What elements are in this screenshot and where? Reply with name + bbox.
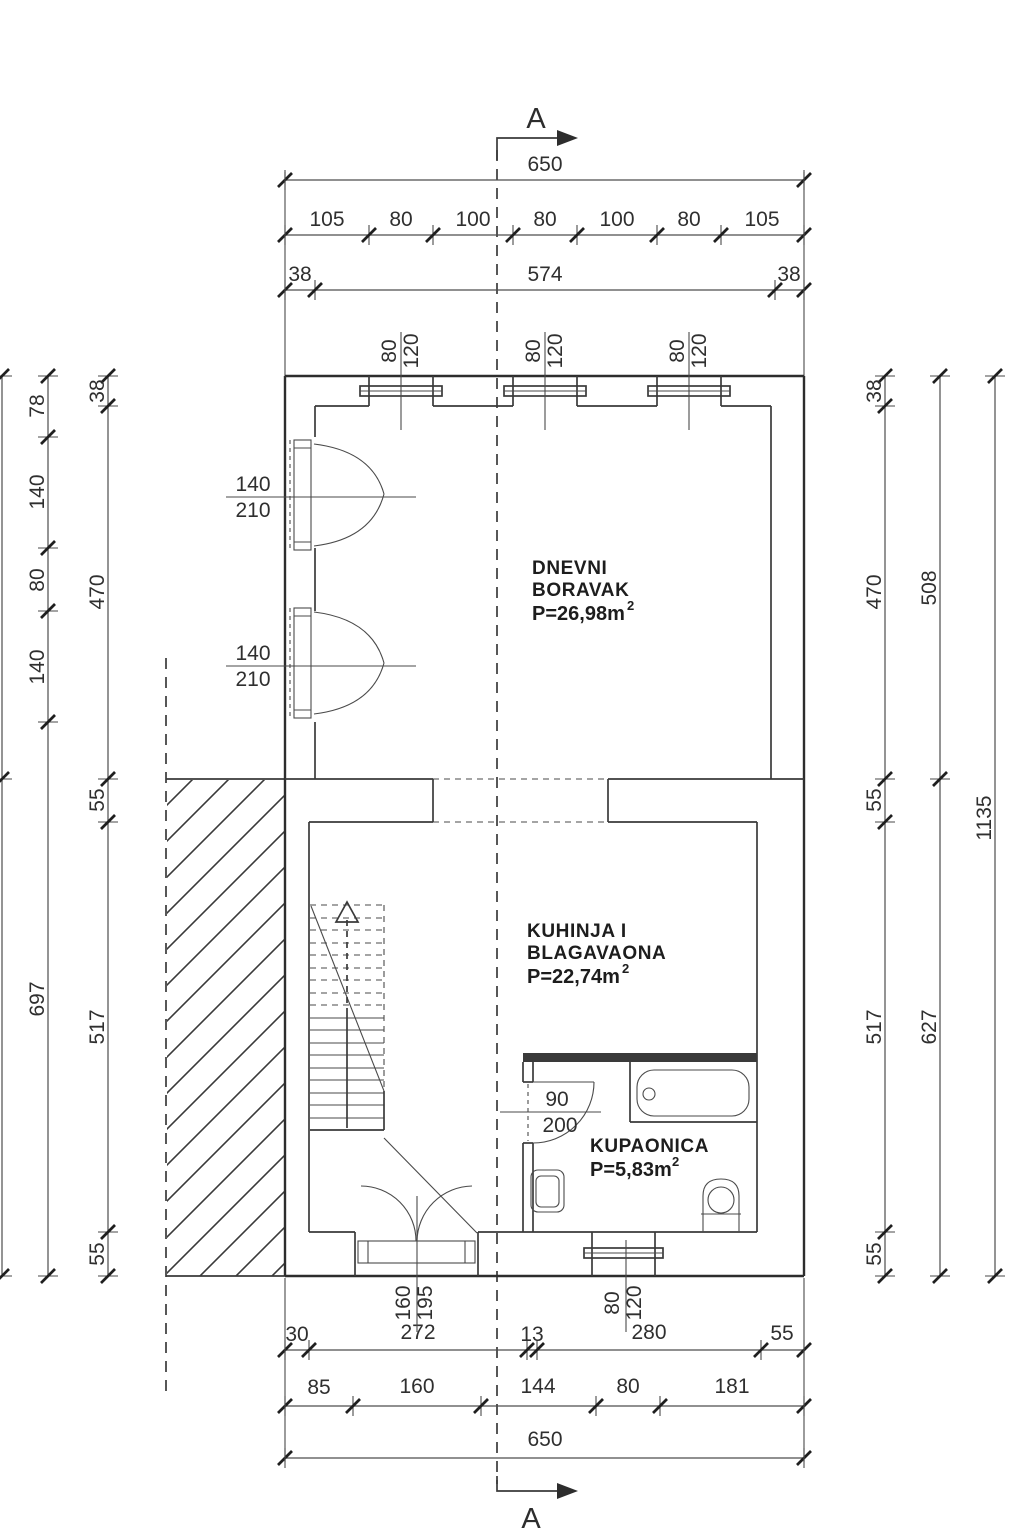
top-window-1-h: 120 bbox=[400, 333, 423, 368]
dim-left-inner-2: 80 bbox=[26, 568, 49, 591]
balcony-door-1-w: 140 bbox=[235, 473, 270, 496]
dim-top-seg-1: 80 bbox=[389, 208, 412, 231]
bathroom-door-h: 200 bbox=[542, 1114, 577, 1137]
room-kitchen-line1: KUHINJA I bbox=[527, 921, 627, 942]
balcony-door-1-h: 210 bbox=[235, 499, 270, 522]
staircase bbox=[310, 902, 477, 1233]
top-window-3-h: 120 bbox=[688, 333, 711, 368]
dim-right-col2-1: 627 bbox=[918, 1009, 941, 1044]
dim-left-outer-3: 517 bbox=[86, 1009, 109, 1044]
dim-bottom-row1-4: 55 bbox=[770, 1322, 793, 1345]
entrance-door-h: 195 bbox=[414, 1285, 437, 1320]
dim-bottom-row1-0: 30 bbox=[285, 1323, 308, 1346]
section-marker-top: A bbox=[526, 103, 546, 135]
dim-bottom-row2-3: 80 bbox=[616, 1375, 639, 1398]
dim-bottom-row1-2: 13 bbox=[520, 1323, 543, 1346]
dim-top-seg-4: 100 bbox=[599, 208, 634, 231]
room-kitchen-area: P=22,74m bbox=[527, 966, 620, 988]
sink bbox=[531, 1170, 564, 1212]
room-bathroom-line1: KUPAONICA bbox=[590, 1136, 709, 1157]
bathroom-window-h: 120 bbox=[623, 1285, 646, 1320]
dim-right-col1-3: 517 bbox=[863, 1009, 886, 1044]
room-living-area-sup: 2 bbox=[627, 598, 634, 613]
dim-left-inner-0: 78 bbox=[26, 394, 49, 417]
balcony-door-2-w: 140 bbox=[235, 642, 270, 665]
dim-top-seg-0: 105 bbox=[309, 208, 344, 231]
room-bathroom-area: P=5,83m bbox=[590, 1159, 672, 1181]
dim-top-seg-5: 80 bbox=[677, 208, 700, 231]
dim-top-seg-3: 80 bbox=[533, 208, 556, 231]
floor-plan-page: A A 650 105 80 100 80 100 80 105 38 574 … bbox=[0, 0, 1024, 1536]
dim-bottom-row2-0: 85 bbox=[307, 1376, 330, 1399]
dim-top-seg-6: 105 bbox=[744, 208, 779, 231]
top-window-1-w: 80 bbox=[378, 339, 401, 362]
section-marker-bottom: A bbox=[521, 1503, 541, 1535]
dim-top-wall-1: 574 bbox=[527, 263, 562, 286]
bathroom-window-w: 80 bbox=[601, 1291, 624, 1314]
top-window-3-w: 80 bbox=[666, 339, 689, 362]
room-bathroom-area-sup: 2 bbox=[672, 1154, 679, 1169]
dim-left-outer-4: 55 bbox=[86, 1242, 109, 1265]
floor-plan-canvas: A A 650 105 80 100 80 100 80 105 38 574 … bbox=[0, 0, 1024, 1536]
dim-right-col1-0: 38 bbox=[863, 379, 886, 402]
hatched-existing-building bbox=[166, 658, 285, 1396]
room-living-area: P=26,98m bbox=[532, 603, 625, 625]
dim-bottom-total: 650 bbox=[527, 1428, 562, 1451]
dim-left-outer-0: 38 bbox=[86, 379, 109, 402]
building-walls bbox=[285, 376, 804, 1276]
room-living-line1: DNEVNI bbox=[532, 558, 607, 579]
dim-right-col1-4: 55 bbox=[863, 1242, 886, 1265]
top-window-2-w: 80 bbox=[522, 339, 545, 362]
dim-left-inner-1: 140 bbox=[26, 474, 49, 509]
dim-top-wall-0: 38 bbox=[288, 263, 311, 286]
left-dimension-lines bbox=[0, 369, 118, 1283]
dim-bottom-row1-1: 272 bbox=[400, 1321, 435, 1344]
top-window-2-h: 120 bbox=[544, 333, 567, 368]
dim-left-inner-4: 697 bbox=[26, 981, 49, 1016]
dim-left-outer-2: 55 bbox=[86, 788, 109, 811]
room-kitchen-line2: BLAGAVAONA bbox=[527, 943, 666, 964]
dim-bottom-row2-1: 160 bbox=[399, 1375, 434, 1398]
bathroom-door-w: 90 bbox=[545, 1088, 568, 1111]
dim-left-outer-1: 470 bbox=[86, 574, 109, 609]
dim-left-inner-3: 140 bbox=[26, 649, 49, 684]
balcony-door-2-h: 210 bbox=[235, 668, 270, 691]
bathtub bbox=[630, 1062, 757, 1122]
dim-right-col1-1: 470 bbox=[863, 574, 886, 609]
dim-bottom-row2-2: 144 bbox=[520, 1375, 555, 1398]
dim-right-col2-0: 508 bbox=[918, 570, 941, 605]
dim-top-total: 650 bbox=[527, 153, 562, 176]
dim-bottom-row1-3: 280 bbox=[631, 1321, 666, 1344]
dim-top-wall-2: 38 bbox=[777, 263, 800, 286]
dim-bottom-row2-4: 181 bbox=[714, 1375, 749, 1398]
room-living-line2: BORAVAK bbox=[532, 580, 629, 601]
entrance-door-w: 160 bbox=[392, 1285, 415, 1320]
dim-right-col3: 1135 bbox=[973, 795, 996, 840]
room-kitchen-area-sup: 2 bbox=[622, 961, 629, 976]
dim-top-seg-2: 100 bbox=[455, 208, 490, 231]
dim-right-col1-2: 55 bbox=[863, 788, 886, 811]
toilet bbox=[701, 1179, 741, 1232]
